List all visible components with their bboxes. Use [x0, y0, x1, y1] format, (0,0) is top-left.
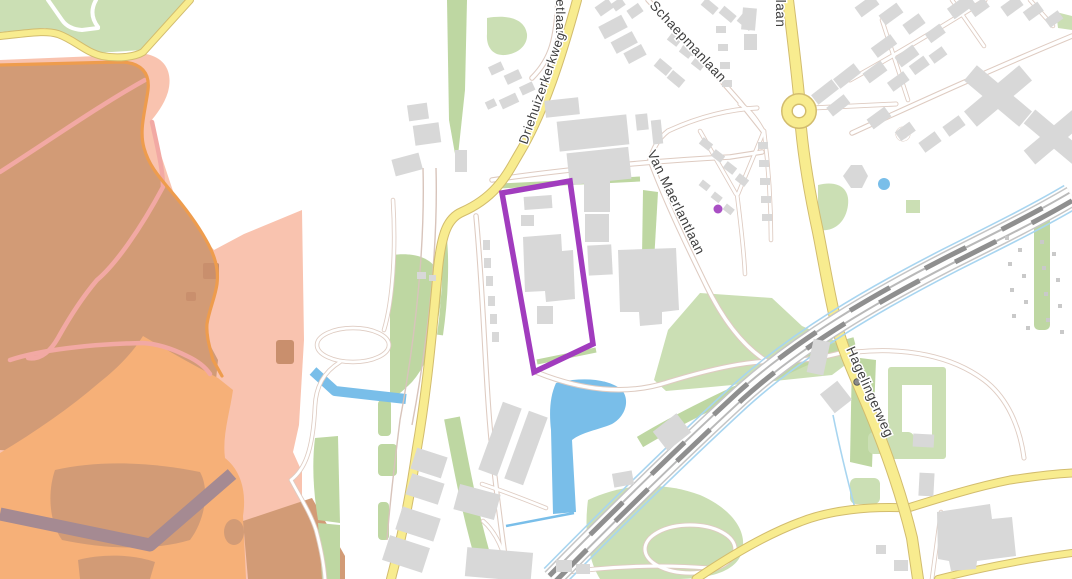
street-label-laan-partial: llaan: [773, 0, 788, 28]
small-pond: [878, 178, 890, 190]
landuse-heath-area: [0, 54, 345, 579]
poi-marker-dot[interactable]: [714, 205, 723, 214]
street-label-schaepmanlaan: Schaepmanlaan: [647, 0, 730, 85]
roundabout: [787, 99, 811, 123]
map-canvas[interactable]: stetlaan Driehuizerkerkweg Schaepmanlaan…: [0, 0, 1072, 579]
map-viewport[interactable]: stetlaan Driehuizerkerkweg Schaepmanlaan…: [0, 0, 1072, 579]
hexagon-building: [843, 165, 868, 188]
